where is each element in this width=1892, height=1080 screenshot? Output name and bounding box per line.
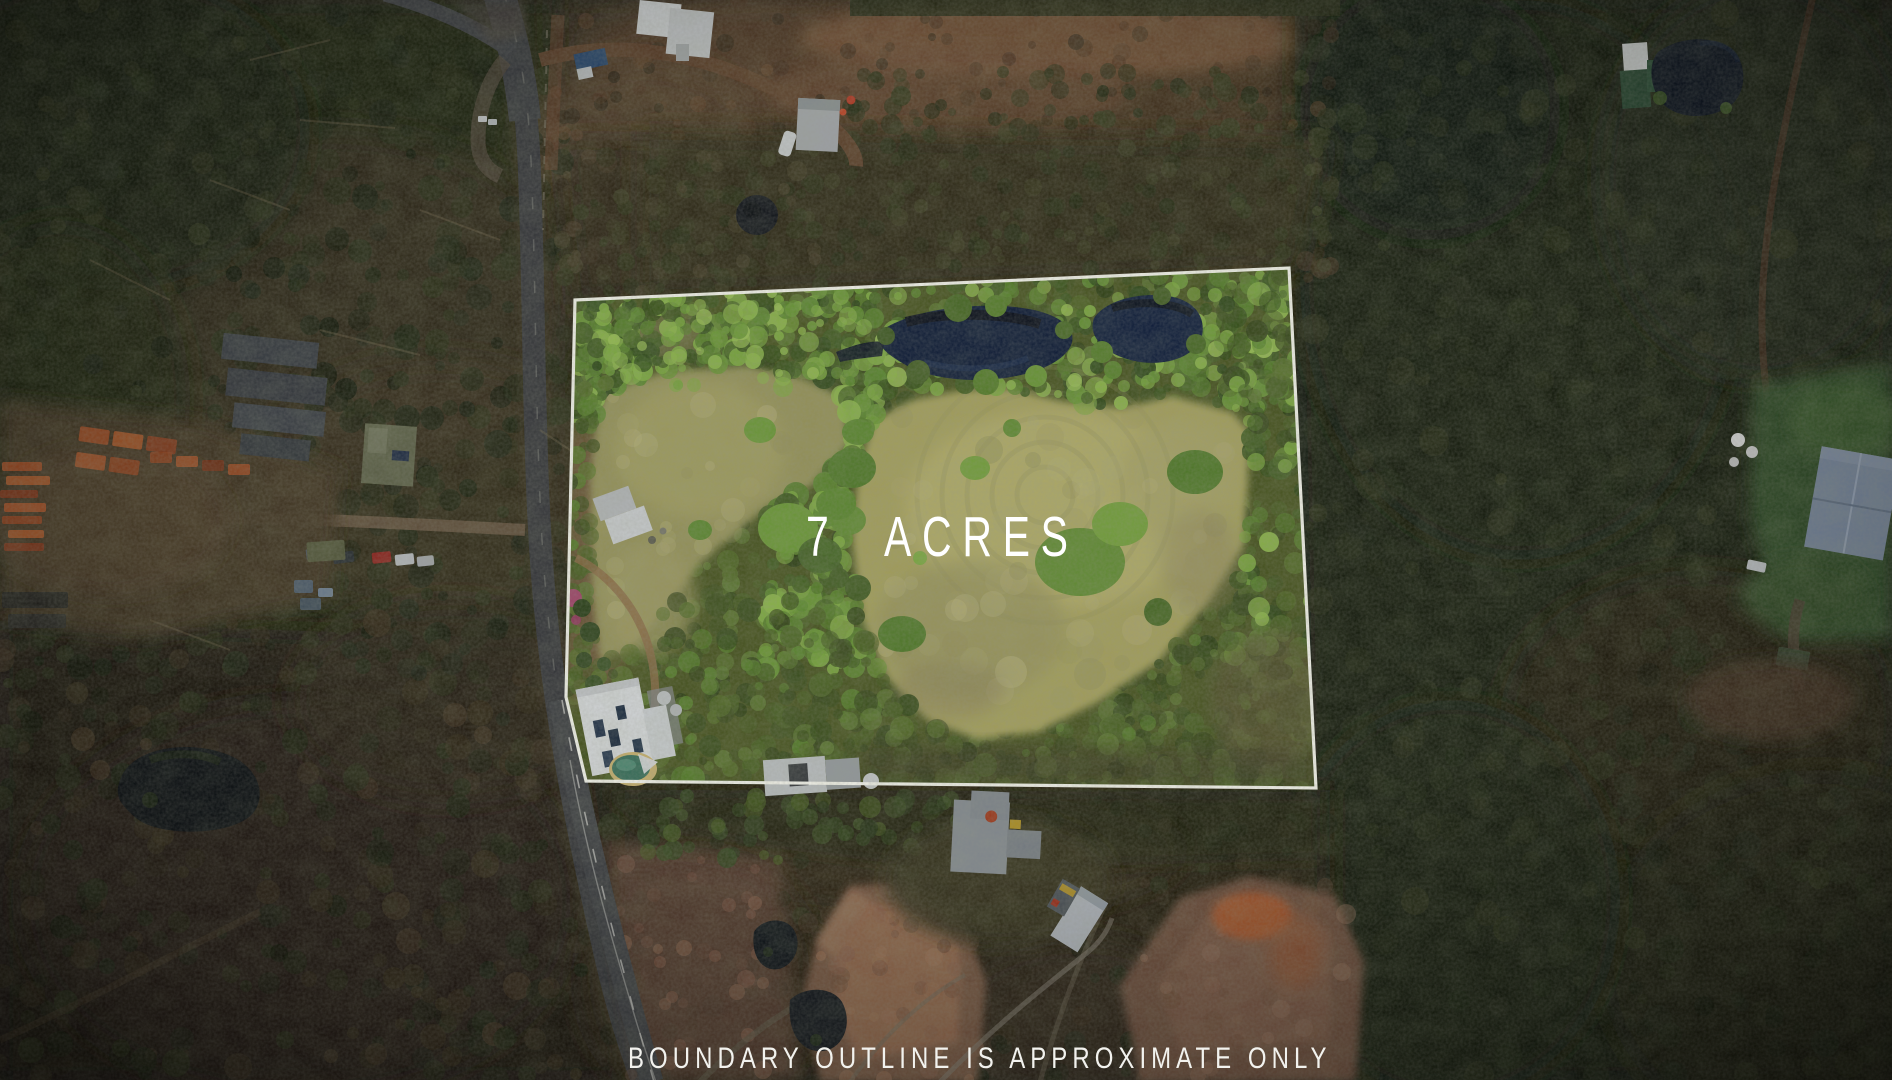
svg-text:ACRES: ACRES <box>884 504 1079 568</box>
svg-text:BOUNDARY OUTLINE IS APPROXIMAT: BOUNDARY OUTLINE IS APPROXIMATE ONLY <box>628 1040 1332 1074</box>
svg-text:7: 7 <box>806 504 829 568</box>
